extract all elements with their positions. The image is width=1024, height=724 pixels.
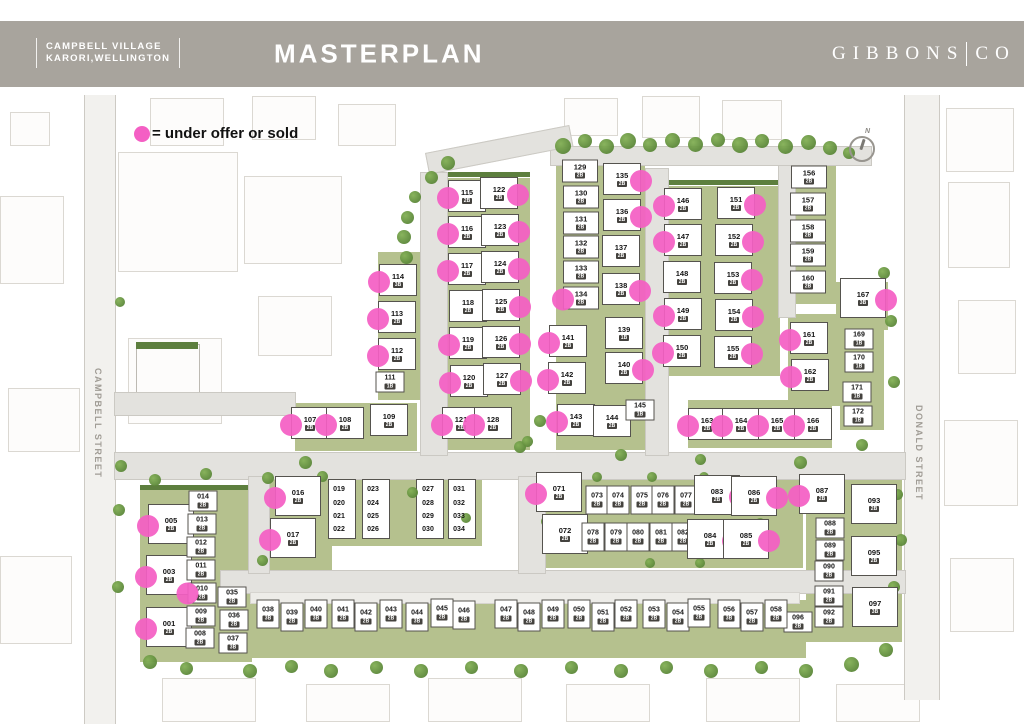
lot-number: 005 — [165, 517, 178, 525]
under-offer-or-sold-dot — [508, 221, 530, 243]
sold-dot-icon — [134, 126, 150, 142]
lot-number: 023 — [367, 486, 379, 494]
under-offer-or-sold-dot — [875, 289, 897, 311]
neighbor-outline — [950, 558, 1014, 632]
lot-number: 097 — [869, 600, 882, 608]
under-offer-or-sold-dot — [437, 260, 459, 282]
bedroom-badge: 2B — [677, 353, 687, 359]
bedroom-badge: 2B — [576, 199, 586, 205]
donald-street-label: DONALD STREET — [914, 405, 924, 501]
under-offer-or-sold-dot — [546, 411, 568, 433]
logo-divider — [966, 42, 967, 66]
lot-109: 1092B — [370, 404, 408, 436]
bedroom-badge: 2B — [548, 616, 558, 622]
neighbor-outline — [8, 388, 80, 452]
tree-icon — [401, 211, 414, 224]
neighbor-outline — [958, 300, 1016, 374]
bedroom-badge: 2B — [227, 599, 237, 605]
lot-number: 129 — [574, 164, 587, 172]
under-offer-or-sold-dot — [437, 187, 459, 209]
tree-icon — [555, 138, 571, 154]
lot-number: 056 — [723, 607, 735, 615]
lot-129: 1292B — [562, 160, 598, 183]
bedroom-badge: 2B — [287, 619, 297, 625]
under-offer-or-sold-dot — [508, 258, 530, 280]
lot-number: 127 — [496, 372, 509, 380]
lot-number: 087 — [816, 487, 829, 495]
under-offer-or-sold-dot — [758, 530, 780, 552]
tree-icon — [645, 558, 655, 568]
bedroom-badge: 2B — [592, 502, 602, 508]
tree-icon — [665, 133, 680, 148]
bedroom-badge: 3B — [870, 609, 880, 615]
lot-number: 042 — [360, 610, 372, 618]
bedroom-badge: 2B — [563, 343, 573, 349]
lot-135: 1352B — [603, 163, 641, 195]
lot-010: 0102B — [188, 583, 217, 604]
tree-icon — [592, 472, 602, 482]
lot-149: 1492B — [664, 298, 702, 330]
tree-icon — [755, 661, 768, 674]
neighbor-outline — [946, 108, 1014, 172]
tree-icon — [180, 662, 193, 675]
tree-icon — [370, 661, 383, 674]
tree-icon — [285, 660, 298, 673]
lot-051: 0512B — [592, 603, 615, 632]
under-offer-or-sold-dot — [437, 223, 459, 245]
lot-052: 0522B — [615, 600, 638, 629]
under-offer-or-sold-dot — [510, 370, 532, 392]
bedroom-badge: 2B — [464, 383, 474, 389]
lot-027: 027 — [413, 484, 443, 496]
bedroom-badge: 2B — [338, 616, 348, 622]
neighbor-outline — [0, 556, 72, 644]
neighbor-outline — [706, 678, 800, 722]
lot-158: 1582B — [790, 220, 826, 243]
lot-076: 0762B — [652, 486, 675, 515]
under-offer-or-sold-dot — [653, 305, 675, 327]
bedroom-badge: 2B — [576, 249, 586, 255]
lot-number: 008 — [194, 631, 206, 639]
lot-040: 0403B — [305, 600, 328, 629]
lot-079: 0792B — [605, 523, 628, 552]
lot-number: 032 — [453, 500, 465, 508]
tree-icon — [695, 454, 706, 465]
tree-icon — [149, 474, 161, 486]
bedroom-badge: 2B — [617, 181, 627, 187]
lot-139: 1391B — [605, 317, 643, 349]
lot-number: 112 — [391, 347, 403, 355]
under-offer-or-sold-dot — [137, 515, 159, 537]
logo-gibbons: GIBBONS — [832, 43, 964, 65]
lot-number: 151 — [730, 196, 743, 204]
lot-number: 088 — [824, 521, 836, 529]
lot-number: 025 — [367, 513, 379, 521]
under-offer-or-sold-dot — [367, 308, 389, 330]
under-offer-or-sold-dot — [135, 618, 157, 640]
lot-123: 1232B — [481, 214, 519, 246]
lot-071: 0712B — [536, 472, 582, 512]
neighbor-outline — [944, 420, 1018, 506]
bedroom-badge: 2B — [677, 279, 687, 285]
lot-089: 0892B — [816, 540, 845, 561]
bedroom-badge: 1B — [635, 412, 645, 418]
bedroom-badge: 2B — [824, 573, 834, 579]
bedroom-badge: 2B — [805, 377, 815, 383]
bedroom-badge: 2B — [384, 422, 394, 428]
bedroom-badge: 2B — [616, 291, 626, 297]
lot-041: 0412B — [332, 600, 355, 629]
brand-block: CAMPBELL VILLAGE KARORI,WELLINGTON — [36, 38, 180, 68]
lot-number: 095 — [868, 549, 881, 557]
tree-icon — [711, 133, 725, 147]
lot-number: 114 — [392, 273, 404, 281]
lot-009: 0092B — [187, 606, 216, 627]
lot-162: 1622B — [791, 359, 829, 391]
bedroom-badge: 2B — [496, 307, 506, 313]
lot-number: 164 — [735, 417, 748, 425]
neighbor-outline — [162, 678, 256, 722]
bedroom-badge: 2B — [633, 539, 643, 545]
tree-icon — [879, 643, 893, 657]
tree-icon — [888, 376, 900, 388]
lot-090: 0902B — [815, 561, 844, 582]
neighbor-outline — [244, 176, 342, 264]
lot-111: 1111B — [376, 372, 405, 393]
lot-number: 081 — [655, 530, 667, 538]
under-offer-or-sold-dot — [629, 280, 651, 302]
bedroom-badge: 2B — [804, 340, 814, 346]
lot-114: 1143B — [379, 264, 417, 296]
lot-number: 084 — [704, 532, 717, 540]
lot-136: 1362B — [603, 199, 641, 231]
bedroom-badge: 2B — [793, 624, 803, 630]
under-offer-or-sold-dot — [538, 332, 560, 354]
compass-icon: N — [849, 136, 875, 162]
under-offer-or-sold-dot — [463, 414, 485, 436]
lot-026: 026 — [358, 524, 388, 536]
bedroom-badge: 2B — [824, 598, 834, 604]
bedroom-badge: 2B — [229, 622, 239, 628]
lot-number: 146 — [677, 197, 690, 205]
tree-icon — [522, 436, 533, 447]
lot-031: 031 — [444, 484, 474, 496]
tree-icon — [599, 139, 614, 154]
donald-street-road — [904, 95, 940, 700]
lot-number: 033 — [453, 513, 465, 521]
lot-number: 022 — [333, 526, 345, 534]
bedroom-badge: 2B — [611, 539, 621, 545]
legend: = under offer or sold — [134, 125, 298, 142]
tree-icon — [885, 315, 897, 327]
lot-number: 154 — [728, 308, 741, 316]
lot-number: 120 — [463, 374, 476, 382]
lot-number: 165 — [771, 417, 784, 425]
lot-127: 1272B — [483, 363, 521, 395]
bedroom-badge: 2B — [495, 232, 505, 238]
lot-039: 0392B — [281, 603, 304, 632]
lot-number: 079 — [610, 530, 622, 538]
lot-number: 158 — [802, 224, 815, 232]
under-offer-or-sold-dot — [652, 342, 674, 364]
under-offer-or-sold-dot — [509, 333, 531, 355]
bedroom-badge: 2B — [524, 619, 534, 625]
tree-icon — [115, 297, 125, 307]
masterplan-page: CAMPBELL VILLAGE KARORI,WELLINGTON MASTE… — [0, 0, 1024, 724]
lot-number: 128 — [487, 416, 500, 424]
page-title: MASTERPLAN — [274, 39, 485, 70]
lot-021: 021 — [324, 511, 354, 523]
bedroom-badge: 2B — [678, 206, 688, 212]
under-offer-or-sold-dot — [744, 194, 766, 216]
tree-icon — [514, 664, 528, 678]
lot-number: 124 — [494, 260, 507, 268]
bedroom-badge: 2B — [705, 541, 715, 547]
tree-icon — [856, 439, 868, 451]
tree-icon — [578, 134, 592, 148]
lot-154: 1542B — [715, 299, 753, 331]
lot-number: 155 — [727, 345, 740, 353]
lot-number: 011 — [195, 563, 206, 571]
lot-043: 0432B — [380, 600, 403, 629]
lot-number: 035 — [226, 590, 238, 598]
bedroom-badge: 2B — [681, 502, 691, 508]
lot-014: 0142B — [189, 491, 218, 512]
hedge-strip — [662, 180, 780, 185]
lot-number: 043 — [385, 607, 397, 615]
neighbor-outline — [948, 182, 1010, 268]
lot-number: 001 — [163, 620, 176, 628]
hedge-strip — [140, 485, 252, 490]
lot-033: 033 — [444, 511, 474, 523]
lot-108: 1082B — [326, 407, 364, 439]
lot-046: 0462B — [453, 601, 476, 630]
lot-number: 111 — [385, 375, 396, 383]
neighbor-outline — [566, 684, 650, 722]
bedroom-badge: 2B — [621, 616, 631, 622]
bedroom-badge: 2B — [288, 540, 298, 546]
bedroom-badge: 1B — [852, 394, 862, 400]
under-offer-or-sold-dot — [509, 296, 531, 318]
hedge-strip — [136, 342, 198, 349]
lot-number: 133 — [575, 265, 588, 273]
tree-icon — [732, 137, 748, 153]
lot-number: 034 — [453, 526, 465, 534]
bedroom-badge: 2B — [392, 319, 402, 325]
lot-number: 085 — [740, 532, 753, 540]
bedroom-badge: 2B — [560, 536, 570, 542]
lot-030: 030 — [413, 524, 443, 536]
under-offer-or-sold-dot — [280, 414, 302, 436]
under-offer-or-sold-dot — [264, 487, 286, 509]
lot-number: 019 — [333, 486, 345, 494]
lot-number: 096 — [792, 615, 804, 623]
under-offer-or-sold-dot — [741, 269, 763, 291]
bedroom-badge: 2B — [495, 269, 505, 275]
tree-icon — [823, 141, 837, 155]
lot-146: 1462B — [664, 188, 702, 220]
bedroom-badge: 2B — [305, 425, 315, 431]
lot-160: 1602B — [790, 271, 826, 294]
lot-170: 1701B — [845, 352, 874, 373]
bedroom-badge: 2B — [728, 354, 738, 360]
bedroom-badge: 2B — [488, 425, 498, 431]
lot-number: 012 — [195, 540, 207, 548]
bedroom-badge: 2B — [462, 271, 472, 277]
lot-138: 1382B — [602, 273, 640, 305]
under-offer-or-sold-dot — [177, 583, 199, 605]
lot-number: 119 — [462, 336, 474, 344]
bedroom-badge: 2B — [392, 356, 402, 362]
lot-number: 141 — [562, 334, 575, 342]
lot-number: 080 — [632, 530, 644, 538]
bedroom-badge: 2B — [803, 233, 813, 239]
tree-icon — [801, 135, 816, 150]
logo-co: CO — [975, 43, 1015, 65]
neighbor-outline — [722, 100, 782, 140]
bedroom-badge: 1B — [854, 341, 864, 347]
bedroom-badge: 2B — [869, 506, 879, 512]
lot-number: 029 — [422, 513, 434, 521]
lot-023: 023 — [358, 484, 388, 496]
lot-number: 031 — [453, 486, 465, 494]
bedroom-badge: 2B — [497, 381, 507, 387]
neighbor-outline — [118, 152, 238, 272]
lot-number: 118 — [462, 299, 474, 307]
lot-number: 113 — [391, 310, 403, 318]
lot-number: 077 — [680, 493, 692, 501]
lot-028: 028 — [413, 498, 443, 510]
lot-number: 086 — [748, 489, 761, 497]
lot-number: 130 — [575, 190, 588, 198]
lot-number: 075 — [636, 493, 648, 501]
lot-number: 089 — [824, 543, 836, 551]
under-offer-or-sold-dot — [779, 329, 801, 351]
bedroom-badge: 2B — [361, 619, 371, 625]
tree-icon — [115, 460, 127, 472]
bedroom-badge: 2B — [576, 225, 586, 231]
under-offer-or-sold-dot — [438, 334, 460, 356]
bedroom-badge: 2B — [554, 494, 564, 500]
under-offer-or-sold-dot — [766, 487, 788, 509]
lot-number: 149 — [677, 307, 690, 315]
lot-112: 1122B — [378, 338, 416, 370]
lot-number: 140 — [618, 361, 631, 369]
lot-157: 1572B — [790, 193, 826, 216]
lot-number: 016 — [292, 489, 305, 497]
neighbor-outline — [338, 104, 396, 146]
lot-number: 027 — [422, 486, 434, 494]
neighbor-outline — [306, 684, 390, 722]
lot-095: 0952B — [851, 536, 897, 576]
tree-icon — [425, 171, 438, 184]
bedroom-badge: 2B — [196, 572, 206, 578]
tree-icon — [647, 472, 657, 482]
brand-divider-left — [36, 38, 37, 68]
bedroom-badge: 2B — [164, 577, 174, 583]
bedroom-badge: 2B — [729, 242, 739, 248]
lot-number: 126 — [495, 335, 508, 343]
lot-number: 058 — [770, 607, 782, 615]
under-offer-or-sold-dot — [677, 415, 699, 437]
bedroom-badge: 2B — [164, 629, 174, 635]
tree-icon — [112, 581, 124, 593]
lot-number: 093 — [868, 497, 881, 505]
lot-122: 1222B — [480, 177, 518, 209]
compass-needle — [859, 139, 865, 150]
lot-080: 0802B — [627, 523, 650, 552]
lot-number: 014 — [197, 494, 209, 502]
lot-number: 122 — [493, 186, 506, 194]
bedroom-badge: 2B — [588, 539, 598, 545]
bedroom-badge: 2B — [803, 206, 813, 212]
lot-093: 0932B — [851, 484, 897, 524]
tree-icon — [534, 415, 546, 427]
under-offer-or-sold-dot — [552, 288, 574, 310]
lot-number: 073 — [591, 493, 603, 501]
lot-143: 1432B — [557, 404, 595, 436]
lot-011: 0112B — [187, 560, 216, 581]
lot-131: 1312B — [563, 212, 599, 235]
bedroom-badge: 2B — [459, 617, 469, 623]
bedroom-badge: 2B — [803, 284, 813, 290]
lot-number: 123 — [494, 223, 507, 231]
lot-number: 020 — [333, 500, 345, 508]
lot-number: 117 — [461, 262, 473, 270]
bedroom-badge: 3B — [263, 616, 273, 622]
lot-045: 0452B — [431, 599, 454, 628]
lot-number: 045 — [436, 606, 448, 614]
lot-128: 1282B — [474, 407, 512, 439]
lot-044: 0443B — [406, 603, 429, 632]
lot-number: 134 — [575, 291, 588, 299]
under-offer-or-sold-dot — [783, 415, 805, 437]
lot-number: 039 — [286, 610, 298, 618]
lot-number: 131 — [575, 216, 588, 224]
under-offer-or-sold-dot — [135, 566, 157, 588]
lot-161: 1612B — [790, 322, 828, 354]
tree-icon — [441, 156, 455, 170]
bedroom-badge: 2B — [598, 619, 608, 625]
lot-number: 156 — [803, 170, 816, 178]
lot-number: 166 — [807, 417, 820, 425]
bedroom-badge: 2B — [576, 274, 586, 280]
lot-124: 1242B — [481, 251, 519, 283]
under-offer-or-sold-dot — [630, 170, 652, 192]
tree-icon — [688, 137, 703, 152]
lot-number: 147 — [677, 233, 690, 241]
lot-088: 0882B — [816, 518, 845, 539]
bedroom-badge: 2B — [741, 541, 751, 547]
neighbor-outline — [642, 96, 700, 138]
bedroom-badge: 2B — [576, 300, 586, 306]
tree-icon — [299, 456, 312, 469]
tree-icon — [400, 251, 413, 264]
lot-number: 144 — [606, 414, 619, 422]
lot-number: 047 — [500, 607, 512, 615]
under-offer-or-sold-dot — [315, 414, 337, 436]
lot-081: 0812B — [650, 523, 673, 552]
lot-126: 1262B — [482, 326, 520, 358]
lot-number: 139 — [618, 326, 631, 334]
lot-number: 160 — [802, 275, 815, 283]
lot-number: 125 — [495, 298, 508, 306]
bedroom-badge: 1B — [619, 335, 629, 341]
lot-number: 038 — [262, 607, 274, 615]
lot-167: 1673B — [840, 278, 886, 318]
bedroom-badge: 2B — [803, 257, 813, 263]
lot-number: 162 — [804, 368, 817, 376]
